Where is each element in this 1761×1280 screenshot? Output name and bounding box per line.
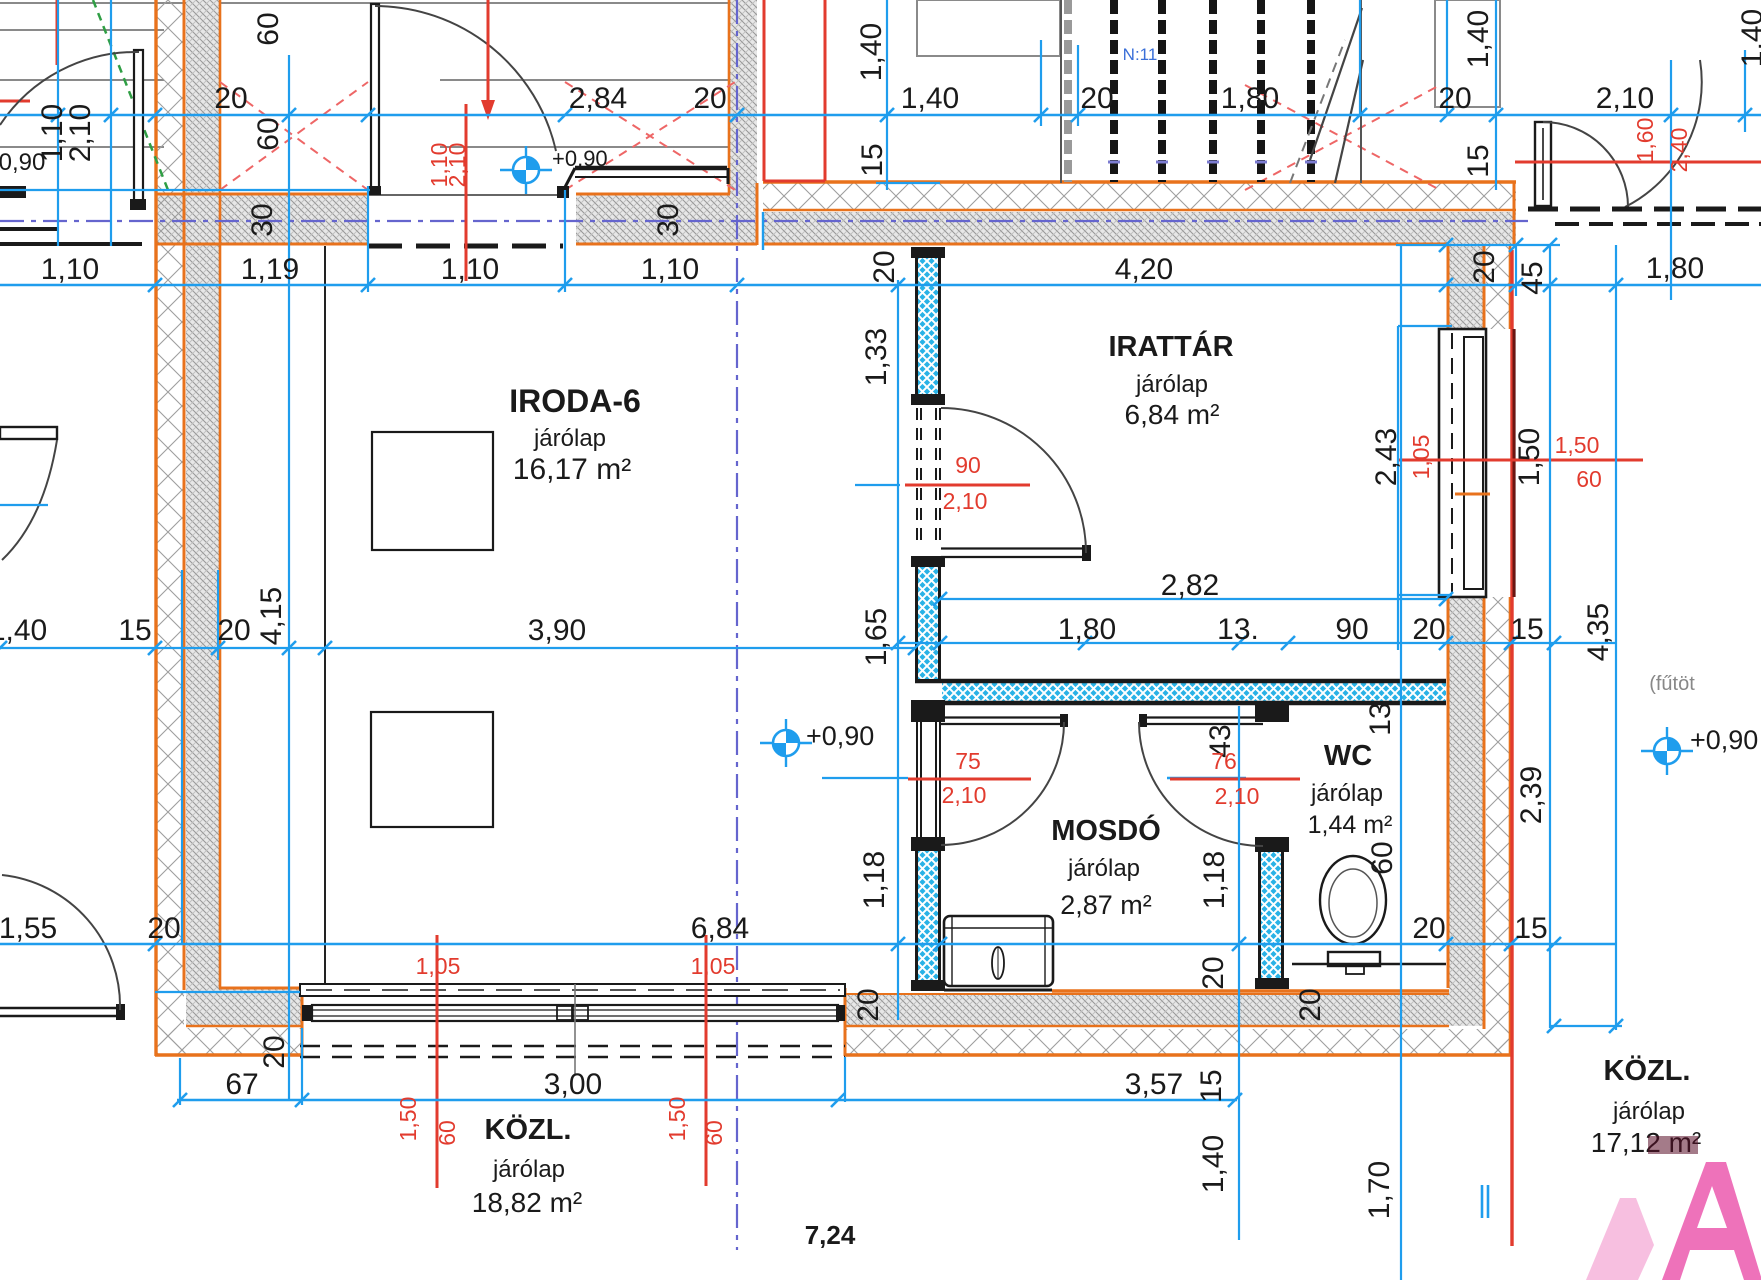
svg-text:1,80: 1,80 — [1646, 252, 1704, 285]
svg-text:20: 20 — [1412, 613, 1445, 646]
svg-text:3,00: 3,00 — [544, 1068, 602, 1101]
svg-text:15: 15 — [1462, 144, 1495, 177]
svg-text:60: 60 — [701, 1120, 727, 1146]
svg-text:1,44 m²: 1,44 m² — [1308, 811, 1393, 839]
svg-text:2,39: 2,39 — [1515, 766, 1548, 824]
svg-text:+0,90: +0,90 — [1690, 725, 1758, 755]
svg-text:90: 90 — [1335, 613, 1368, 646]
svg-text:20: 20 — [217, 614, 250, 647]
svg-text:+0,90: +0,90 — [806, 721, 874, 751]
svg-text:15: 15 — [1195, 1069, 1228, 1102]
svg-text:járólap: járólap — [1067, 855, 1140, 882]
svg-text:1,18: 1,18 — [1198, 851, 1231, 909]
svg-text:15: 15 — [1510, 613, 1543, 646]
svg-text:2,10: 2,10 — [942, 782, 987, 808]
svg-text:1,10: 1,10 — [41, 253, 99, 286]
svg-text:1,40: 1,40 — [901, 82, 959, 115]
svg-text:2,10: 2,10 — [1596, 82, 1654, 115]
svg-text:1,70: 1,70 — [1363, 1161, 1396, 1219]
svg-text:1,40: 1,40 — [1736, 9, 1761, 67]
svg-text:60: 60 — [1576, 466, 1602, 492]
svg-text:15: 15 — [856, 143, 889, 176]
svg-text:60: 60 — [252, 12, 285, 45]
svg-text:6,84 m²: 6,84 m² — [1125, 399, 1220, 430]
svg-text:20: 20 — [1438, 82, 1471, 115]
svg-text:2,87 m²: 2,87 m² — [1060, 890, 1152, 920]
svg-text:1,50: 1,50 — [1513, 428, 1546, 486]
svg-text:1,60: 1,60 — [1632, 118, 1658, 163]
svg-text:MOSDÓ: MOSDÓ — [1051, 813, 1161, 847]
svg-text:(fűtöt: (fűtöt — [1649, 673, 1695, 695]
svg-text:KÖZL.: KÖZL. — [485, 1113, 572, 1146]
svg-text:1,50: 1,50 — [1555, 432, 1600, 458]
svg-text:2,10: 2,10 — [943, 488, 988, 514]
svg-text:15: 15 — [118, 614, 151, 647]
svg-text:2,84: 2,84 — [569, 82, 627, 115]
svg-text:1,80: 1,80 — [1058, 613, 1116, 646]
svg-text:1,19: 1,19 — [241, 253, 299, 286]
svg-text:járólap: járólap — [1135, 371, 1208, 398]
svg-text:1,05: 1,05 — [416, 953, 461, 979]
svg-text:20: 20 — [1197, 956, 1230, 989]
svg-text:20: 20 — [693, 82, 726, 115]
svg-text:75: 75 — [955, 748, 981, 774]
svg-text:1,40: 1,40 — [1462, 10, 1495, 68]
svg-text:20: 20 — [852, 988, 885, 1021]
svg-text:45: 45 — [1516, 261, 1549, 294]
svg-text:N:11: N:11 — [1123, 45, 1158, 64]
svg-text:2,43: 2,43 — [1370, 428, 1403, 486]
svg-text:1,50: 1,50 — [395, 1097, 421, 1142]
svg-text:30: 30 — [652, 203, 685, 236]
svg-text:15: 15 — [1514, 912, 1547, 945]
svg-text:20: 20 — [868, 250, 901, 283]
svg-text:2,40: 2,40 — [1666, 128, 1692, 173]
svg-text:járólap: járólap — [492, 1156, 565, 1183]
svg-text:járólap: járólap — [1310, 780, 1383, 807]
svg-text:20: 20 — [1294, 988, 1327, 1021]
svg-text:20: 20 — [258, 1035, 291, 1068]
svg-text:2,10: 2,10 — [64, 104, 97, 162]
svg-text:30: 30 — [246, 203, 279, 236]
svg-text:76: 76 — [1211, 748, 1237, 774]
svg-text:WC: WC — [1324, 740, 1372, 772]
svg-text:20: 20 — [214, 82, 247, 115]
svg-text:20: 20 — [1468, 250, 1501, 283]
svg-text:3,90: 3,90 — [528, 614, 586, 647]
svg-text:járólap: járólap — [533, 425, 606, 452]
svg-text:3,57: 3,57 — [1125, 1068, 1183, 1101]
svg-text:1,65: 1,65 — [860, 608, 893, 666]
svg-text:2,10: 2,10 — [1215, 783, 1260, 809]
svg-text:1,18: 1,18 — [858, 851, 891, 909]
svg-text:7,24: 7,24 — [805, 1220, 856, 1250]
svg-text:90: 90 — [955, 452, 981, 478]
svg-text:1,40: 1,40 — [1197, 1135, 1230, 1193]
svg-text:2,82: 2,82 — [1161, 569, 1219, 602]
svg-text:60: 60 — [252, 117, 285, 150]
svg-text:IRODA-6: IRODA-6 — [509, 383, 641, 419]
svg-text:1,05: 1,05 — [1408, 435, 1434, 480]
svg-text:18,82 m²: 18,82 m² — [472, 1187, 583, 1218]
svg-text:KÖZL.: KÖZL. — [1604, 1054, 1691, 1087]
svg-text:4,20: 4,20 — [1115, 253, 1173, 286]
svg-text:1,05: 1,05 — [691, 953, 736, 979]
svg-text:2,10: 2,10 — [444, 143, 470, 188]
svg-text:4,35: 4,35 — [1582, 603, 1615, 661]
svg-text:6,84: 6,84 — [691, 912, 749, 945]
svg-text:4,15: 4,15 — [255, 587, 288, 645]
svg-text:1,33: 1,33 — [860, 328, 893, 386]
svg-text:IRATTÁR: IRATTÁR — [1108, 329, 1233, 363]
svg-text:20: 20 — [1080, 82, 1113, 115]
svg-text:1,40: 1,40 — [0, 614, 47, 647]
svg-text:60: 60 — [1366, 841, 1399, 874]
svg-text:13: 13 — [1364, 702, 1397, 735]
svg-text:60: 60 — [434, 1120, 460, 1146]
svg-text:+0,90: +0,90 — [552, 146, 608, 171]
svg-text:1,50: 1,50 — [664, 1097, 690, 1142]
svg-text:13.: 13. — [1217, 613, 1259, 646]
svg-text:1,55: 1,55 — [0, 912, 57, 945]
svg-text:járólap: járólap — [1612, 1098, 1685, 1125]
svg-text:1,10: 1,10 — [641, 253, 699, 286]
svg-text:67: 67 — [225, 1068, 258, 1101]
svg-text:16,17 m²: 16,17 m² — [513, 453, 631, 486]
svg-text:20: 20 — [147, 912, 180, 945]
svg-text:1,40: 1,40 — [855, 23, 888, 81]
svg-text:1,10: 1,10 — [441, 253, 499, 286]
svg-text:1,80: 1,80 — [1221, 82, 1279, 115]
svg-text:20: 20 — [1412, 912, 1445, 945]
